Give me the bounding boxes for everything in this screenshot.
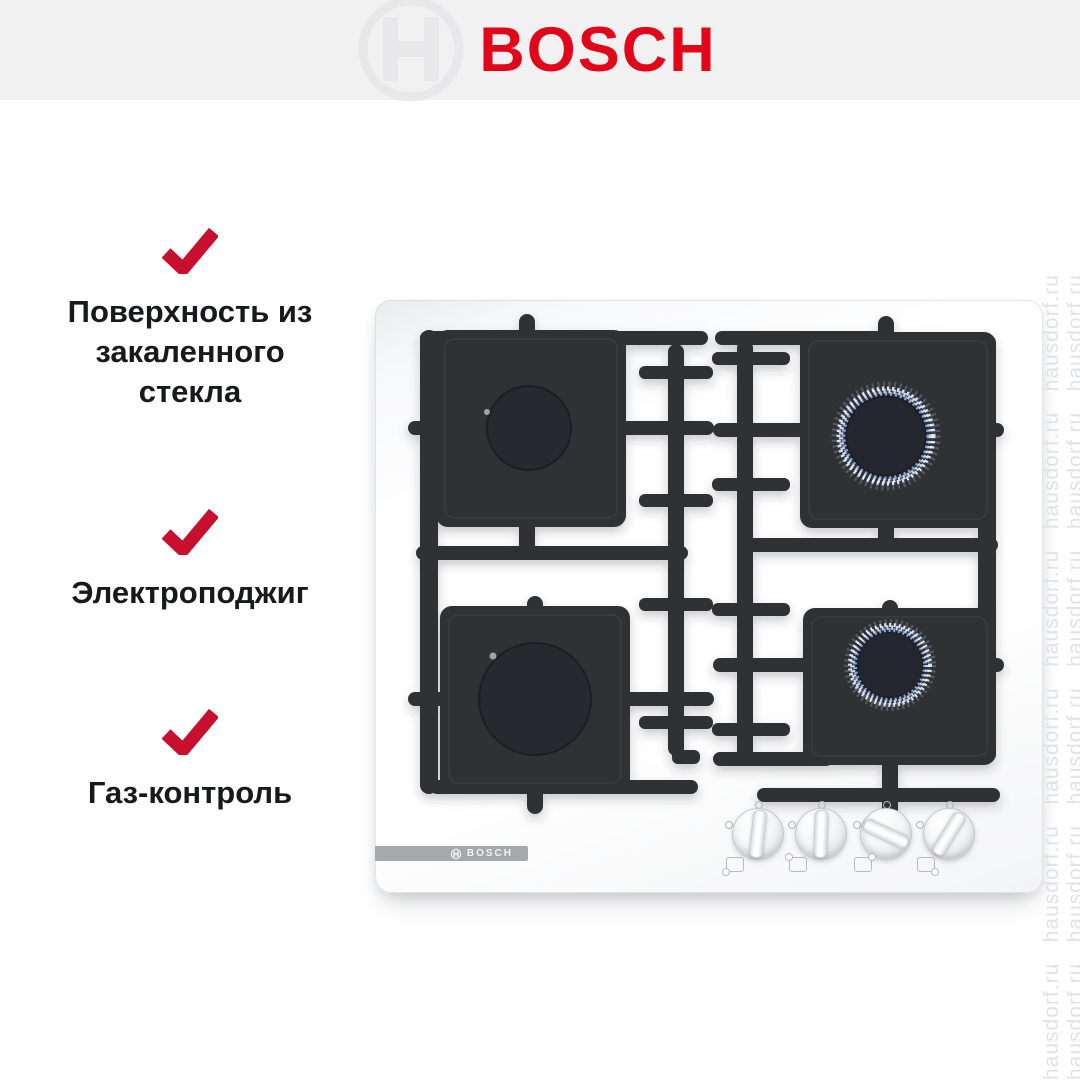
control-knob-front-left	[732, 808, 782, 858]
burner-front-left	[479, 643, 591, 755]
feature-electric-ignition: Электроподжиг	[20, 509, 360, 613]
right-grate	[712, 316, 1004, 818]
burner-position-icon	[789, 857, 807, 872]
check-icon	[162, 509, 218, 555]
feature-text: Поверхность из закаленного стекла	[20, 292, 360, 412]
check-icon	[162, 228, 218, 274]
knob-handle	[813, 810, 829, 858]
watermark-column: hausdorf.ru hausdorf.ru hausdorf.ru haus…	[1040, 252, 1064, 1080]
promo-card: BOSCH Поверхность из закаленного стекла …	[0, 0, 1080, 1080]
bosch-badge-anchor-icon	[450, 848, 462, 860]
control-knob-front-right	[923, 808, 973, 858]
burner-position-icon	[726, 857, 744, 872]
feature-line: Поверхность из	[20, 292, 360, 332]
feature-text: Газ-контроль	[20, 773, 360, 813]
burner-position-icon	[917, 857, 935, 872]
bosch-badge-text: BOSCH	[467, 849, 513, 859]
feature-line: Электроподжиг	[20, 573, 360, 613]
burner-front-right	[857, 632, 923, 698]
header-band: BOSCH	[0, 0, 1080, 100]
bosch-anchor-watermark-icon	[352, 0, 470, 108]
watermark-column-clipped: hausdorf.ru hausdorf.ru hausdorf.ru haus…	[1064, 268, 1080, 1080]
bosch-badge: BOSCH	[375, 846, 528, 861]
control-knob-back-left	[795, 808, 845, 858]
feature-line: Газ-контроль	[20, 773, 360, 813]
feature-text: Электроподжиг	[20, 573, 360, 613]
check-icon	[162, 709, 218, 755]
burner-position-icon	[854, 857, 872, 872]
feature-line: стекла	[20, 372, 360, 412]
gas-hob-product-image: BOSCH	[375, 300, 1043, 893]
burner-back-left	[487, 386, 571, 470]
brand-logo-text: BOSCH	[479, 14, 717, 86]
feature-line: закаленного	[20, 332, 360, 372]
control-knob-back-right	[860, 808, 910, 858]
burner-back-right	[846, 396, 926, 476]
feature-gas-control: Газ-контроль	[20, 709, 360, 813]
burner-grates-graphic	[375, 300, 1043, 893]
feature-tempered-glass: Поверхность из закаленного стекла	[20, 228, 360, 412]
